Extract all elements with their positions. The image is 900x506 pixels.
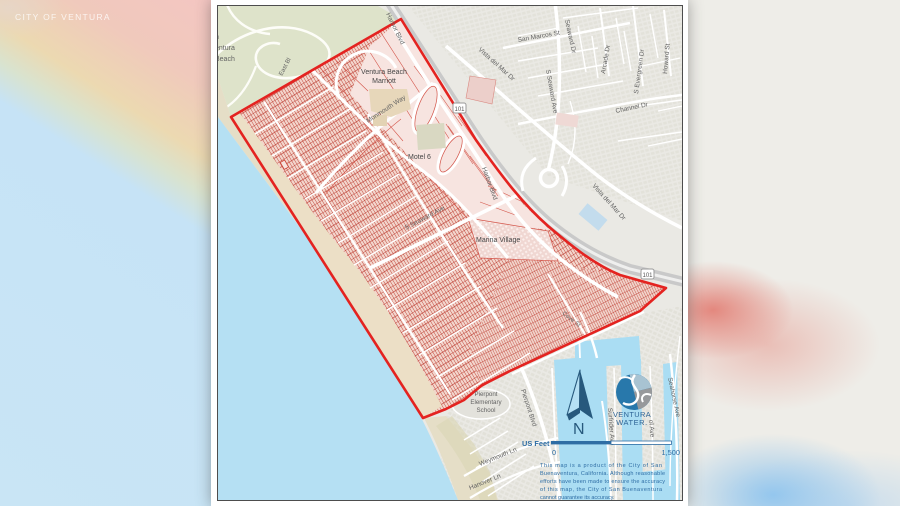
svg-text:1,500: 1,500	[661, 448, 680, 457]
svg-text:Elementary: Elementary	[470, 399, 502, 406]
svg-text:Beach: Beach	[218, 56, 235, 63]
svg-text:101: 101	[642, 273, 653, 279]
svg-text:N: N	[573, 421, 585, 438]
svg-text:of this map, the City of San B: of this map, the City of San Buenaventur…	[540, 487, 663, 493]
svg-text:Motel 6: Motel 6	[408, 154, 431, 161]
svg-text:Marina Village: Marina Village	[476, 237, 520, 244]
svg-text:101: 101	[454, 107, 465, 113]
svg-text:n: n	[218, 34, 219, 41]
svg-text:entura: entura	[218, 45, 235, 52]
svg-text:Marriott: Marriott	[372, 78, 396, 85]
svg-text:Pierpont: Pierpont	[474, 391, 497, 398]
svg-text:efforts have been made to ensu: efforts have been made to ensure the acc…	[540, 479, 665, 485]
svg-text:This map is a product of the C: This map is a product of the City of San	[540, 463, 662, 469]
svg-text:0: 0	[552, 448, 556, 457]
svg-text:cannot guarantee its accuracy.: cannot guarantee its accuracy.	[540, 495, 615, 500]
svg-text:Buenaventura, California. Alth: Buenaventura, California. Although reaso…	[540, 471, 665, 477]
svg-text:School: School	[476, 407, 495, 414]
svg-text:Ventura Beach: Ventura Beach	[361, 69, 407, 76]
svg-text:US Feet: US Feet	[522, 439, 550, 448]
svg-text:WATER.: WATER.	[616, 418, 648, 427]
